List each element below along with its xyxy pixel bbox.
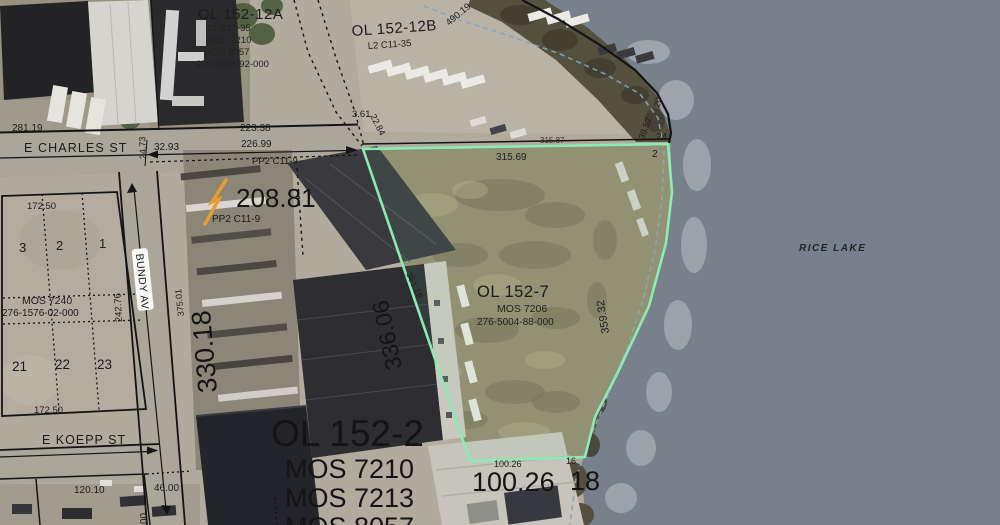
dim-label-208-81: 208.81 [236,183,316,213]
dim-label-223-38: 223.38 [240,123,271,134]
dim-label-315-69: 315.69 [496,152,527,163]
label-parcel-ol-152-2-sub1: MOS 7210 [285,454,414,484]
dim-label-172-50-bottom: 172.50 [34,405,63,416]
dim-label-281-19: 281.19 [12,123,43,134]
label-pp2-c11-9-block: PP2 C11-9 [212,214,261,225]
label-mos-7240: MOS 7240 [22,295,72,307]
dim-label-242-76: 242.76 [112,293,125,323]
dim-label-18: 18 [570,466,600,496]
label-parcel-ol-152-12a-sub1: L1 C11-35 [207,23,251,34]
water-label-rice-lake: RICE LAKE [799,243,866,254]
label-parcel-ol-152-7-sub2: 276-5004-88-000 [477,317,554,328]
street-label-e-charles-st: E CHARLES ST [24,141,128,155]
dim-label-172-50-top: 172.50 [27,201,56,212]
dim-label-3-61: 3.61 [352,109,371,120]
label-parcel-ol-152-12a-sub2: MOS 7210 [206,35,251,46]
lot-label-22: 22 [55,357,70,372]
dim-label-226-99: 226.99 [241,139,272,150]
dim-label-120-10: 120.10 [74,485,105,496]
dim-label-16: 16 [566,456,576,466]
lot-label-2: 2 [56,238,63,253]
dim-label-24: 24 [656,132,668,143]
dim-label-315-87: 315.87 [540,136,565,145]
label-parcel-ol-152-2-sub3: MOS 8057 [285,512,414,525]
label-276-1576-02-000: 276-1576-02-000 [2,308,79,319]
parcel-map-viewport[interactable]: OL 152-12A L1 C11-35 MOS 7210 MOS 8057 2… [0,0,1000,525]
label-parcel-ol-152-7-sub1: MOS 7206 [497,303,547,315]
street-label-e-koepp-st: E KOEPP ST [42,433,126,447]
dim-label-46-00: 46.00 [154,483,179,494]
label-parcel-ol-152-2-sub2: MOS 7213 [285,483,414,513]
label-parcel-ol-152-12a: OL 152-12A [198,6,283,23]
dim-label-2: 2 [652,149,658,160]
dim-label-100-26-big: 100.26 [472,467,555,497]
lot-label-1: 1 [99,236,106,251]
label-parcel-ol-152-12a-sub4: 276-5004-92-000 [196,59,269,70]
label-parcel-ol-152-7: OL 152-7 [477,283,549,301]
lot-label-3: 3 [19,240,26,255]
dim-label-32-93: 32.93 [154,142,179,153]
label-pp2-c11-9-street: PP2 C11-9 [252,156,298,167]
label-parcel-ol-152-12a-sub3: MOS 8057 [204,47,249,58]
dim-label-partial: 00 [139,512,150,524]
parcel-map-canvas[interactable]: OL 152-12A L1 C11-35 MOS 7210 MOS 8057 2… [0,0,1000,525]
lot-label-23: 23 [97,357,112,372]
dim-label-24-73: 24.73 [137,136,148,159]
label-parcel-ol-152-2: OL 152-2 [271,413,424,454]
lot-label-21: 21 [12,359,27,374]
